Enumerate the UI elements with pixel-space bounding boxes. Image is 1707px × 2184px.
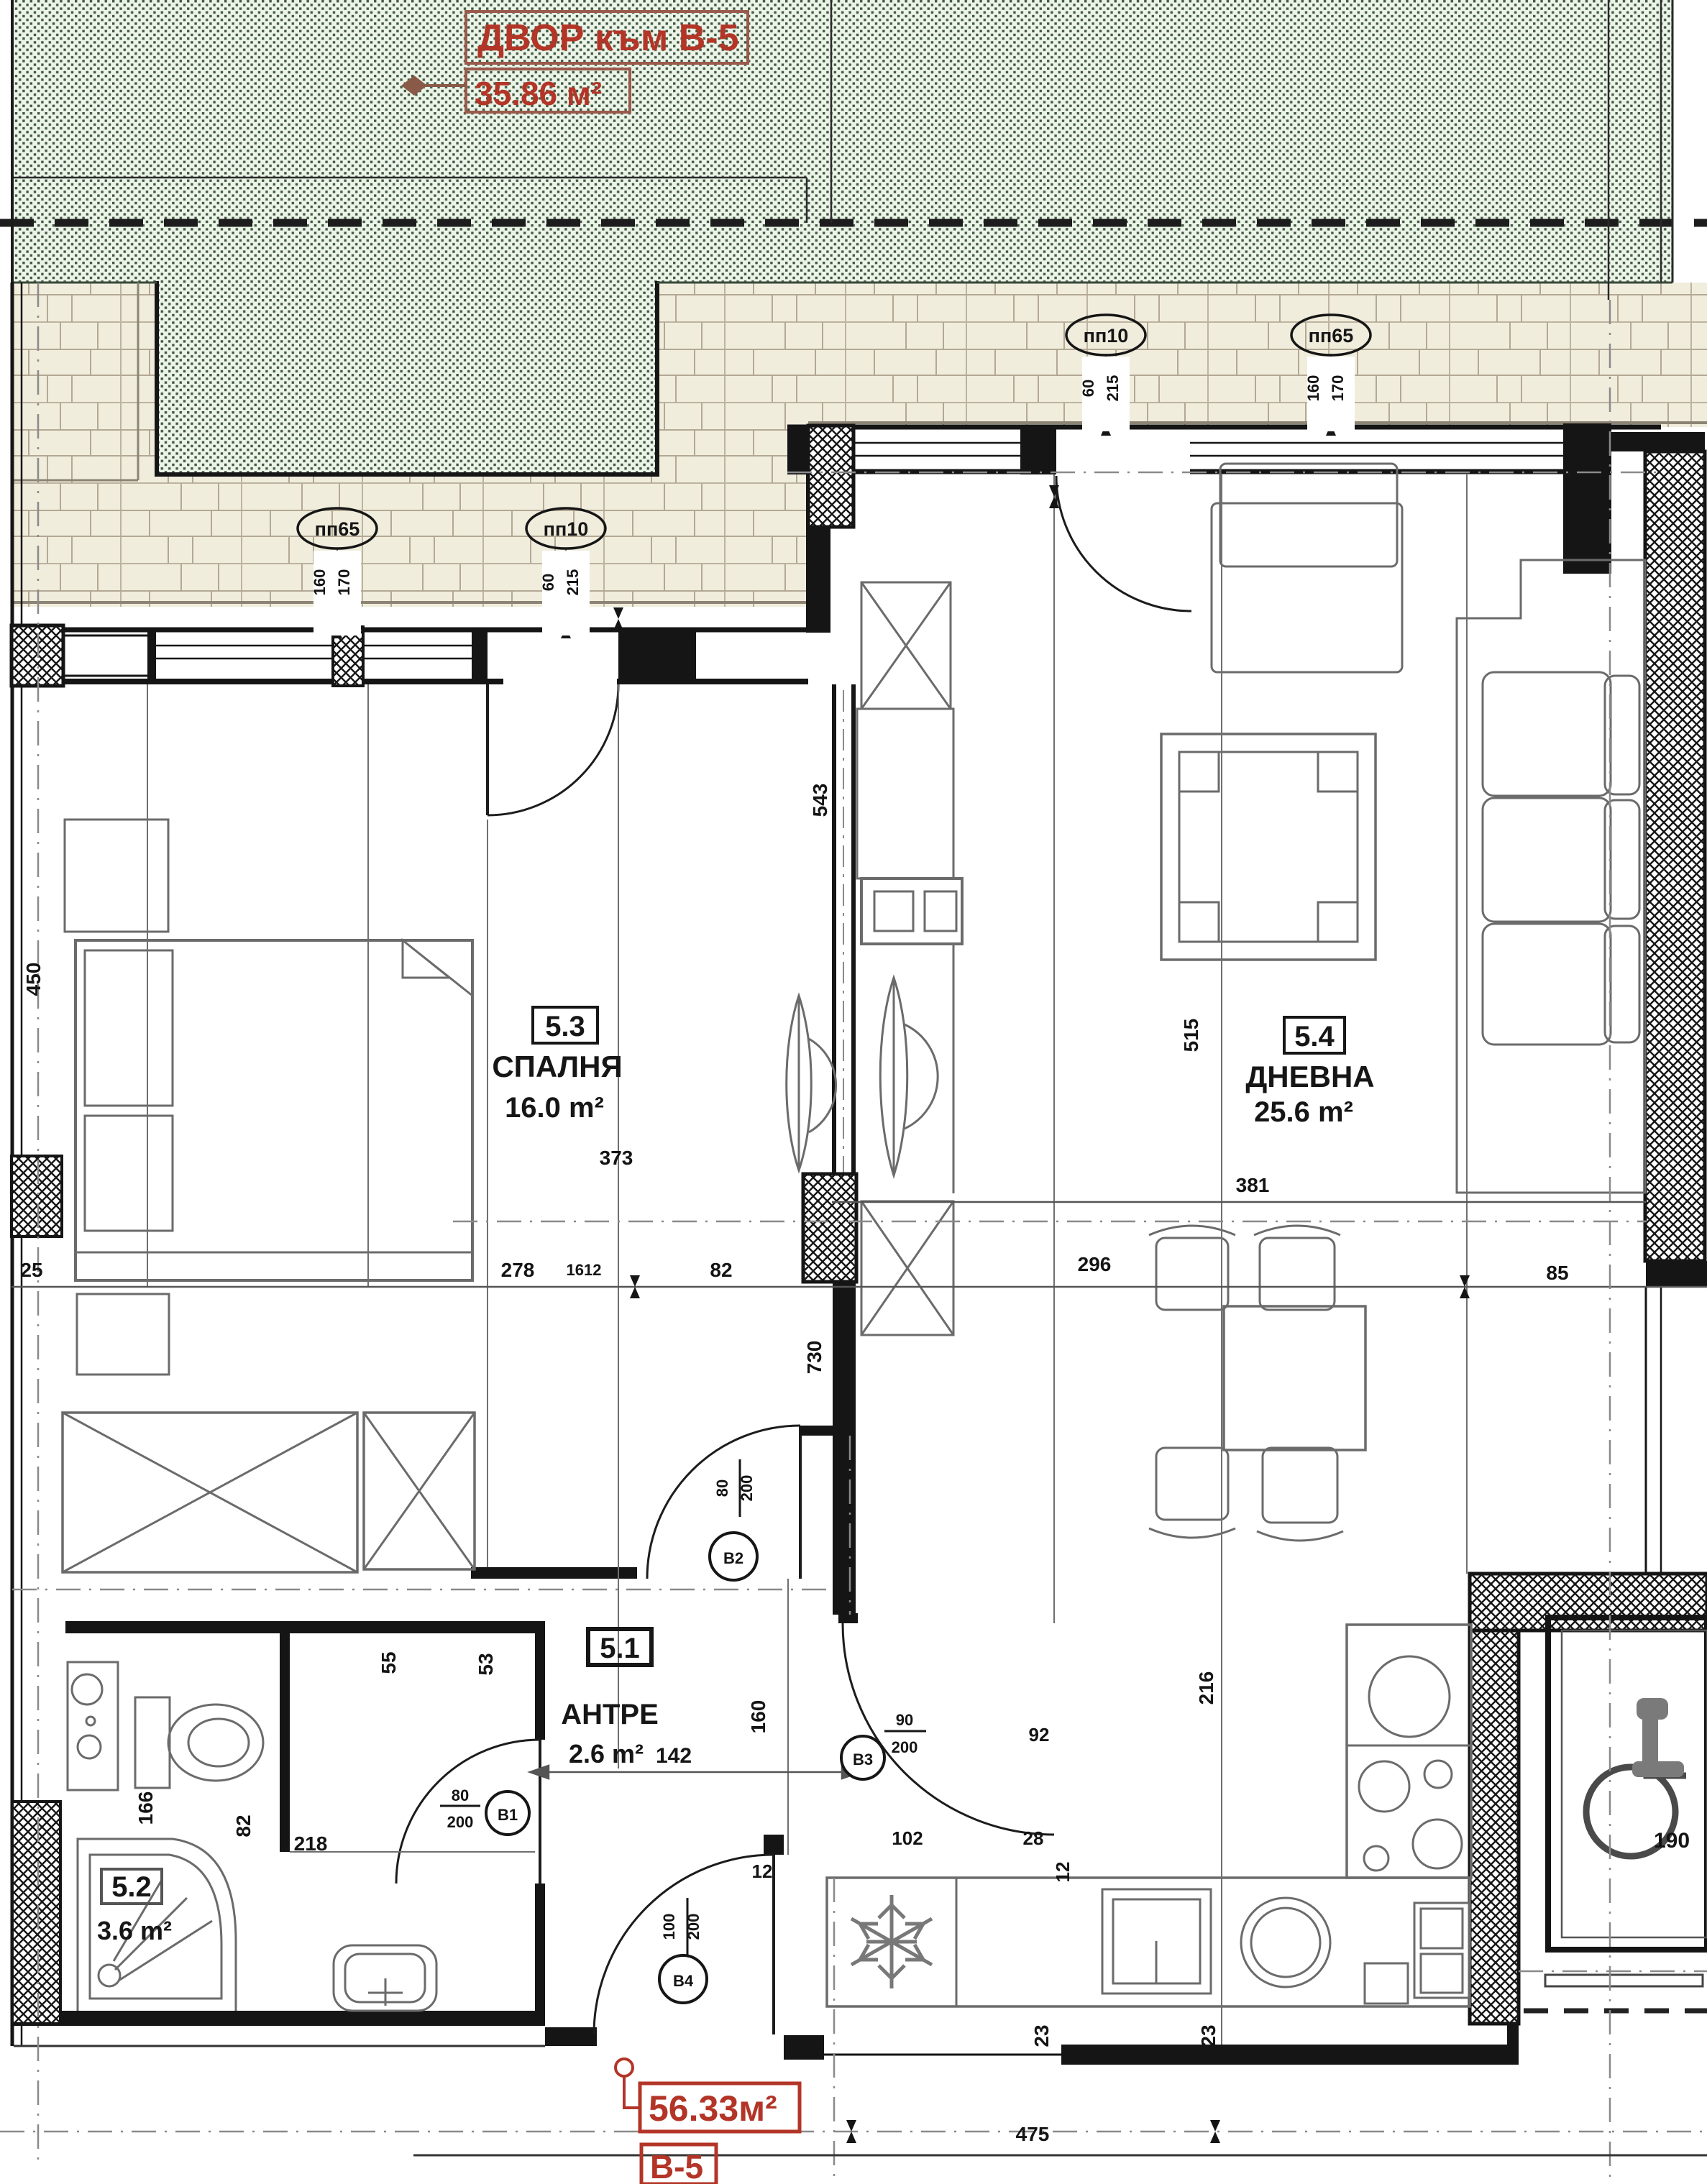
svg-text:пп65: пп65 — [315, 518, 360, 540]
svg-text:5.1: 5.1 — [600, 1633, 640, 1664]
svg-text:515: 515 — [1180, 1019, 1202, 1052]
svg-text:82: 82 — [232, 1814, 255, 1837]
svg-text:60: 60 — [1079, 380, 1097, 397]
svg-text:170: 170 — [335, 569, 353, 596]
svg-text:160: 160 — [311, 569, 329, 596]
svg-text:60: 60 — [539, 574, 557, 591]
svg-text:166: 166 — [134, 1791, 157, 1825]
svg-text:278: 278 — [501, 1259, 535, 1281]
svg-text:В2: В2 — [723, 1549, 743, 1567]
svg-text:25: 25 — [20, 1259, 42, 1281]
svg-text:23: 23 — [1030, 2024, 1053, 2047]
svg-text:ДВОР към В-5: ДВОР към В-5 — [477, 17, 739, 59]
svg-text:пп10: пп10 — [1084, 325, 1129, 347]
svg-text:5.4: 5.4 — [1294, 1021, 1335, 1052]
svg-text:373: 373 — [600, 1147, 633, 1169]
svg-text:56.33м²: 56.33м² — [649, 2088, 777, 2129]
svg-text:218: 218 — [294, 1832, 328, 1855]
svg-text:СПАЛНЯ: СПАЛНЯ — [492, 1050, 622, 1083]
svg-text:543: 543 — [809, 784, 831, 817]
svg-text:В3: В3 — [853, 1751, 873, 1768]
svg-text:102: 102 — [892, 1827, 923, 1849]
svg-text:2.6 m²: 2.6 m² — [569, 1739, 644, 1768]
svg-text:АНТРЕ: АНТРЕ — [561, 1699, 659, 1730]
svg-text:пп10: пп10 — [544, 518, 589, 540]
svg-text:381: 381 — [1236, 1174, 1270, 1196]
svg-text:12: 12 — [1052, 1862, 1074, 1883]
svg-text:142: 142 — [656, 1744, 692, 1768]
svg-text:5.3: 5.3 — [545, 1011, 585, 1042]
svg-text:80: 80 — [452, 1786, 469, 1804]
svg-text:200: 200 — [892, 1738, 918, 1756]
svg-text:82: 82 — [710, 1259, 732, 1281]
svg-text:215: 215 — [1104, 375, 1122, 402]
svg-text:53: 53 — [475, 1653, 497, 1675]
svg-text:В4: В4 — [673, 1972, 694, 1990]
svg-text:160: 160 — [747, 1700, 769, 1734]
svg-text:пп65: пп65 — [1309, 325, 1354, 347]
svg-text:200: 200 — [447, 1813, 474, 1831]
svg-text:23: 23 — [1197, 2024, 1219, 2047]
svg-text:12: 12 — [752, 1860, 773, 1882]
svg-text:В-5: В-5 — [650, 2148, 703, 2184]
svg-text:190: 190 — [1654, 1829, 1690, 1853]
svg-text:90: 90 — [896, 1711, 913, 1729]
svg-text:25.6 m²: 25.6 m² — [1254, 1096, 1353, 1128]
svg-text:92: 92 — [1029, 1724, 1050, 1745]
svg-text:1612: 1612 — [567, 1261, 602, 1279]
svg-text:55: 55 — [377, 1651, 400, 1674]
svg-text:216: 216 — [1195, 1671, 1217, 1705]
svg-text:ДНЕВНА: ДНЕВНА — [1245, 1060, 1374, 1093]
svg-text:80: 80 — [713, 1479, 731, 1497]
svg-text:730: 730 — [803, 1341, 825, 1375]
svg-text:5.2: 5.2 — [111, 1871, 152, 1903]
svg-text:28: 28 — [1023, 1827, 1044, 1849]
svg-text:35.86 м²: 35.86 м² — [475, 75, 602, 112]
svg-text:160: 160 — [1304, 375, 1322, 402]
svg-text:475: 475 — [1016, 2123, 1050, 2145]
svg-text:85: 85 — [1546, 1262, 1568, 1284]
svg-text:170: 170 — [1329, 375, 1347, 402]
svg-text:450: 450 — [22, 963, 45, 996]
svg-text:В1: В1 — [498, 1806, 518, 1824]
svg-text:296: 296 — [1078, 1253, 1112, 1275]
svg-text:215: 215 — [564, 569, 582, 596]
svg-text:100: 100 — [660, 1914, 678, 1940]
svg-text:16.0 m²: 16.0 m² — [505, 1092, 604, 1124]
svg-text:3.6 m²: 3.6 m² — [97, 1916, 172, 1945]
